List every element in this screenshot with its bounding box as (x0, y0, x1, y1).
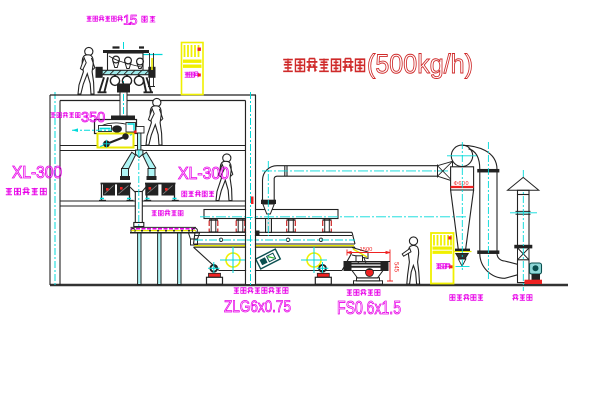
svg-text:ZLG6x0.75: ZLG6x0.75 (224, 297, 291, 316)
svg-text:(500kg/h): (500kg/h) (367, 49, 473, 79)
svg-text:1.5: 1.5 (123, 12, 138, 28)
svg-text:350: 350 (81, 110, 105, 126)
svg-text:FS0.6x1.5: FS0.6x1.5 (337, 298, 401, 318)
svg-text:1500: 1500 (360, 247, 373, 253)
svg-text:XL-300: XL-300 (12, 162, 62, 182)
svg-text:XL-300: XL-300 (178, 163, 229, 183)
svg-text:545: 545 (393, 262, 399, 273)
